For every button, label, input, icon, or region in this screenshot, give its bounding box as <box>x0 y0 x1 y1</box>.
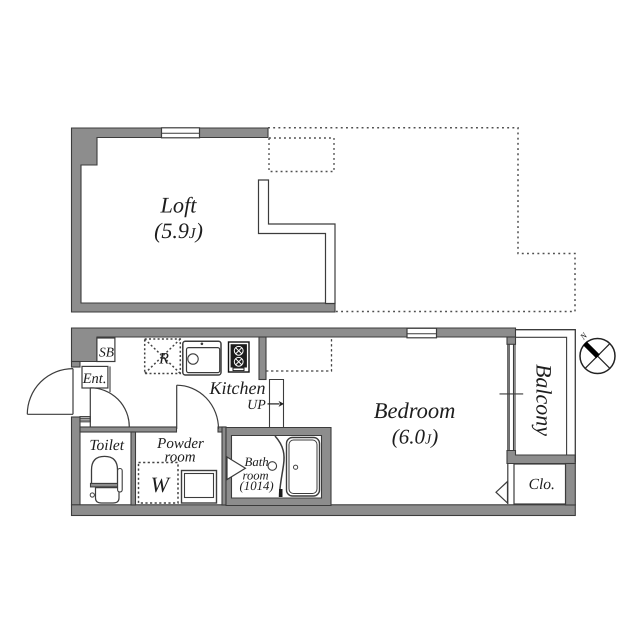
svg-text:Kitchen: Kitchen <box>209 378 266 398</box>
svg-text:Loft: Loft <box>160 193 198 218</box>
svg-text:Clo.: Clo. <box>529 476 555 493</box>
svg-text:room: room <box>164 450 195 466</box>
svg-text:Ent.: Ent. <box>82 371 107 387</box>
svg-text:R: R <box>158 351 169 368</box>
svg-text:Balcony: Balcony <box>532 364 557 436</box>
svg-text:W: W <box>151 472 171 497</box>
svg-text:Toilet: Toilet <box>89 437 124 454</box>
svg-text:Bedroom: Bedroom <box>374 398 456 423</box>
svg-text:(1014): (1014) <box>240 479 274 493</box>
svg-text:(5.9J): (5.9J) <box>154 218 203 243</box>
svg-text:Bath: Bath <box>245 455 269 469</box>
svg-text:UP: UP <box>247 398 266 413</box>
svg-text:SB: SB <box>99 345 114 360</box>
svg-text:(6.0J): (6.0J) <box>392 425 438 449</box>
